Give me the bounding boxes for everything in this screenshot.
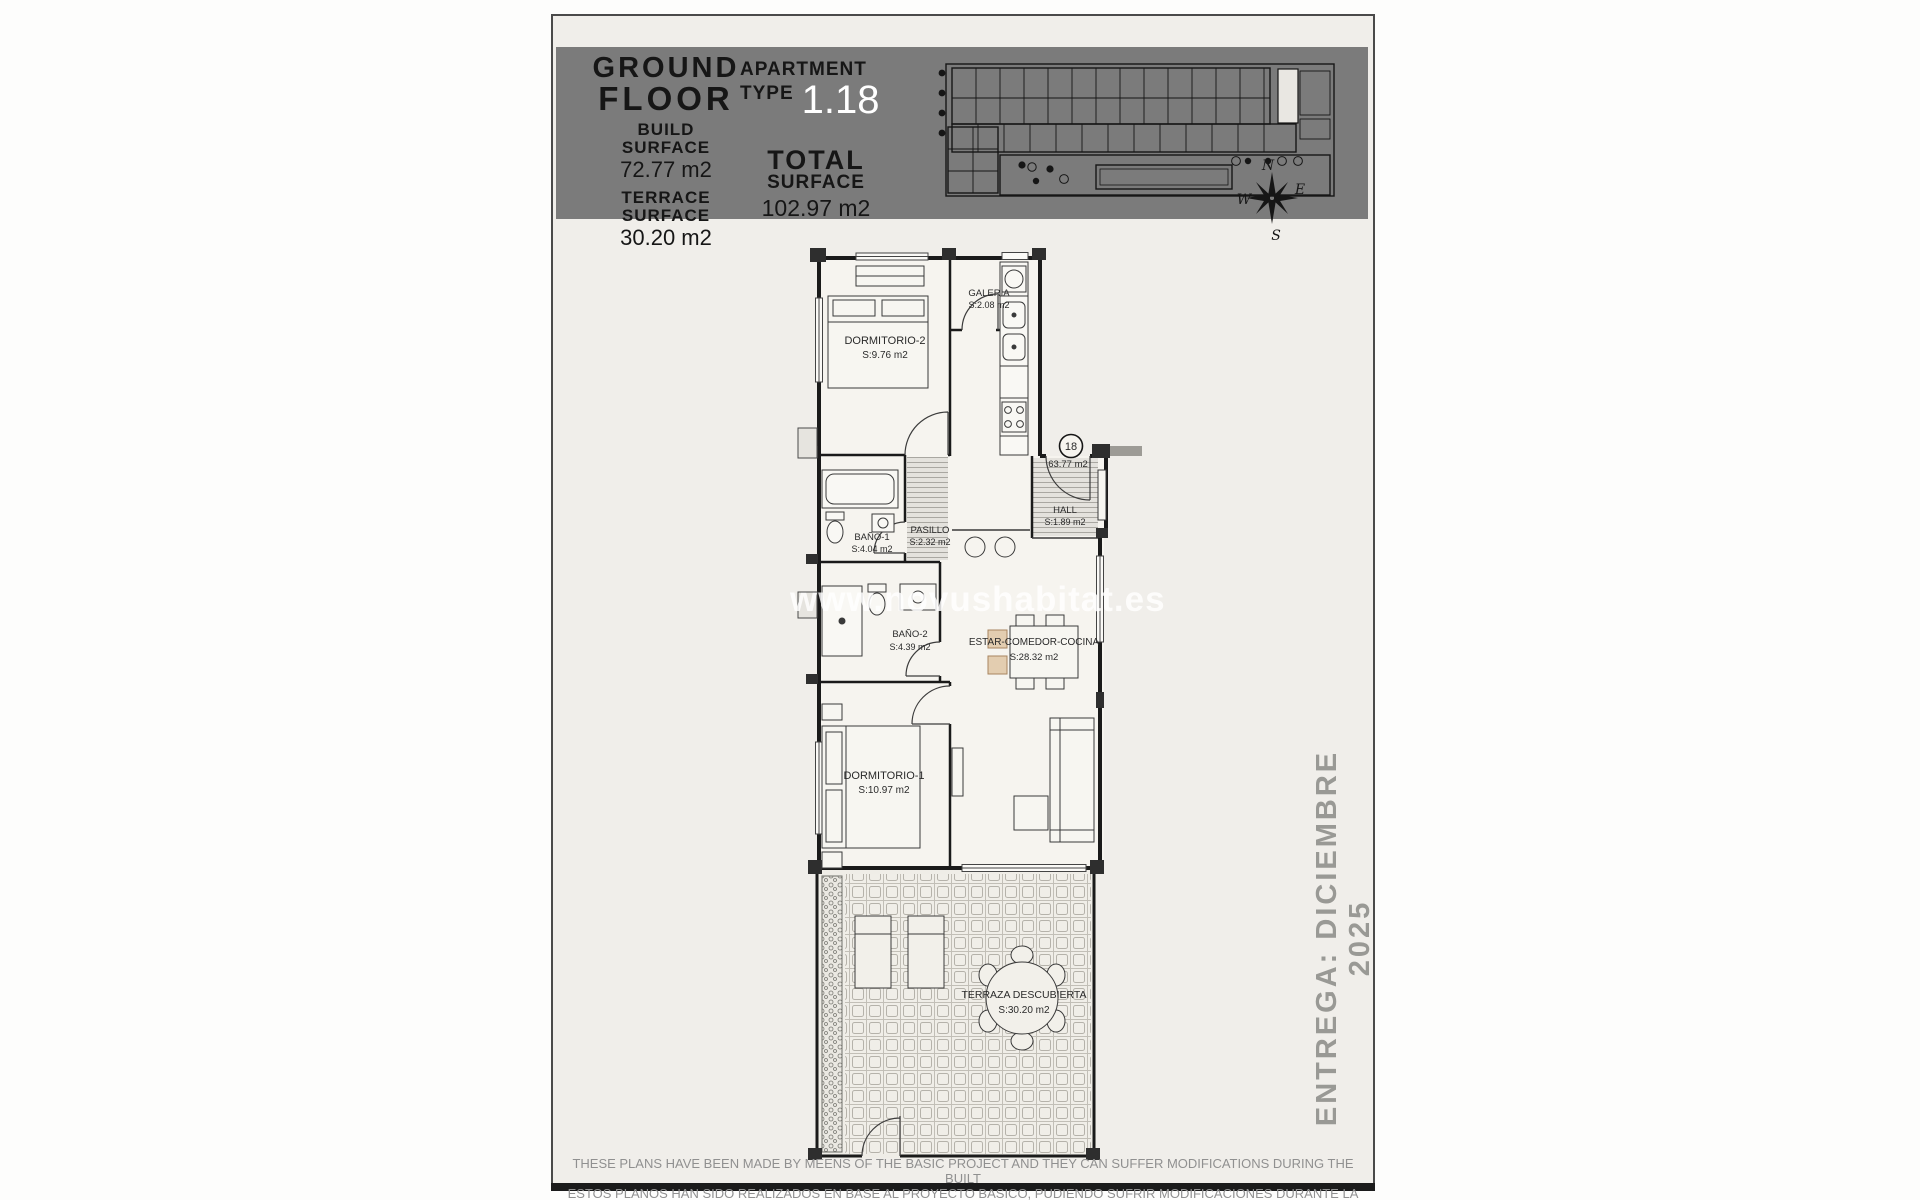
sink-1 [872,514,894,532]
floor-word-1: GROUND [578,53,754,83]
apartment-number: 1.18 [802,81,880,119]
total-surface-value: 102.97 m2 [742,193,890,223]
area-dormitorio-1: S:10.97 m2 [858,785,910,796]
compass-star [1246,172,1298,224]
dining-chair-tan-2 [988,656,1007,674]
label-galeria: GALERIA [968,288,1010,299]
hall-shelf [1098,470,1106,520]
terrace-surface-label: TERRACE SURFACE [578,189,754,225]
disclaimer: THESE PLANS HAVE BEEN MADE BY MEENS OF T… [560,1156,1366,1200]
nightstand-1b [822,852,842,868]
tv-sideboard [952,748,963,796]
area-terraza: S:30.20 m2 [998,1005,1050,1016]
label-terraza: TERRAZA DESCUBIERTA [961,989,1086,1001]
area-pasillo: S:2.32 m2 [909,537,950,547]
stove [1002,402,1026,432]
area-hall: S:1.89 m2 [1044,517,1085,527]
floor-title: GROUND FLOOR BUILD SURFACE 72.77 m2 TERR… [578,53,754,251]
unit-number-text: 18 [1065,441,1077,453]
entry-mat [1108,446,1142,456]
compass-east-label: E [1294,182,1305,198]
sun-lounger-1 [855,916,891,988]
bathtub [822,470,898,508]
compass-west-label: W [1237,192,1253,208]
build-surface-value: 72.77 m2 [578,157,754,183]
label-hall: HALL [1053,505,1077,516]
highlighted-unit [1278,69,1298,123]
floor-word-2: FLOOR [578,83,754,115]
toilet-tank-1 [826,512,844,520]
nightstand-1a [822,704,842,720]
total-surface-block: TOTAL SURFACE 102.97 m2 [742,147,890,223]
label-dormitorio-2: DORMITORIO-2 [844,335,925,347]
area-galeria: S:2.08 m2 [968,300,1009,310]
build-surface-label-2: SURFACE [578,139,754,157]
label-pasillo: PASILLO [911,525,950,536]
type-label: TYPE [740,83,794,105]
terrace-surface-label-1: TERRACE [578,189,754,207]
build-surface-label: BUILD SURFACE [578,121,754,157]
terrace-planter [822,876,842,1152]
label-estar: ESTAR-COMEDOR-COCINA [969,637,1100,648]
apartment-type-block: APARTMENT TYPE 1.18 [740,59,890,119]
label-dormitorio-1: DORMITORIO-1 [843,770,924,782]
area-dormitorio-2: S:9.76 m2 [862,350,908,361]
compass-rose: N E S W [1236,158,1310,242]
label-bano-1: BAÑO-1 [854,532,889,543]
compass-north-label: N [1261,158,1275,174]
sun-lounger-2 [908,916,944,988]
build-surface-label-1: BUILD [578,121,754,139]
disclaimer-line-en: THESE PLANS HAVE BEEN MADE BY MEENS OF T… [560,1156,1366,1186]
disclaimer-line-es: ESTOS PLANOS HAN SIDO REALIZADOS EN BASE… [560,1186,1366,1200]
floor-plan: 18 63.77 m2 DORMITORIO-2 S:9.76 m2 GALER… [780,240,1200,1170]
coffee-table [1014,796,1048,830]
delivery-note: ENTREGA: DICIEMBRE 2025 [1311,713,1377,1163]
sofa [1050,718,1094,842]
area-bano-1: S:4.04 m2 [851,544,892,554]
area-estar: S:28.32 m2 [1010,652,1059,663]
unit-area-text: 63.77 m2 [1048,459,1088,470]
toilet-1 [827,521,843,543]
plan-sheet: GROUND FLOOR BUILD SURFACE 72.77 m2 TERR… [0,0,1920,1200]
total-label: TOTAL [742,147,890,173]
compass-south-label: S [1271,228,1281,242]
label-bano-2: BAÑO-2 [892,629,927,640]
watermark: www.novushabitat.es [790,580,1160,620]
terrace-surface-value: 30.20 m2 [578,225,754,251]
terrace-surface-label-2: SURFACE [578,207,754,225]
area-bano-2: S:4.39 m2 [889,642,930,652]
total-surface-label: SURFACE [742,173,890,193]
